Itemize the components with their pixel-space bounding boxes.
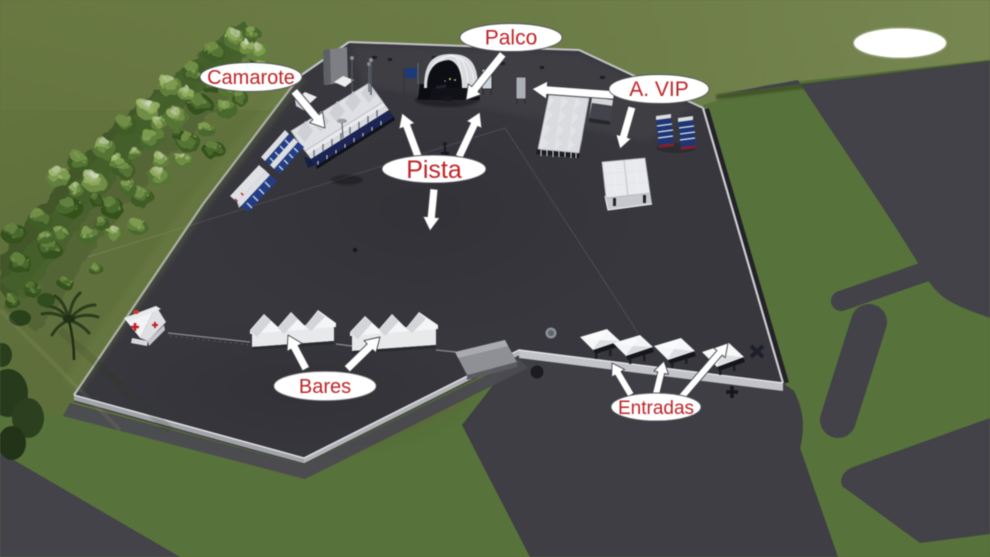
svg-text:Pista: Pista <box>406 156 462 184</box>
svg-text:Entradas: Entradas <box>618 398 694 419</box>
svg-text:A. VIP: A. VIP <box>629 78 689 101</box>
svg-text:Palco: Palco <box>485 27 538 50</box>
svg-text:Bares: Bares <box>299 376 351 398</box>
svg-text:Camarote: Camarote <box>207 67 295 89</box>
